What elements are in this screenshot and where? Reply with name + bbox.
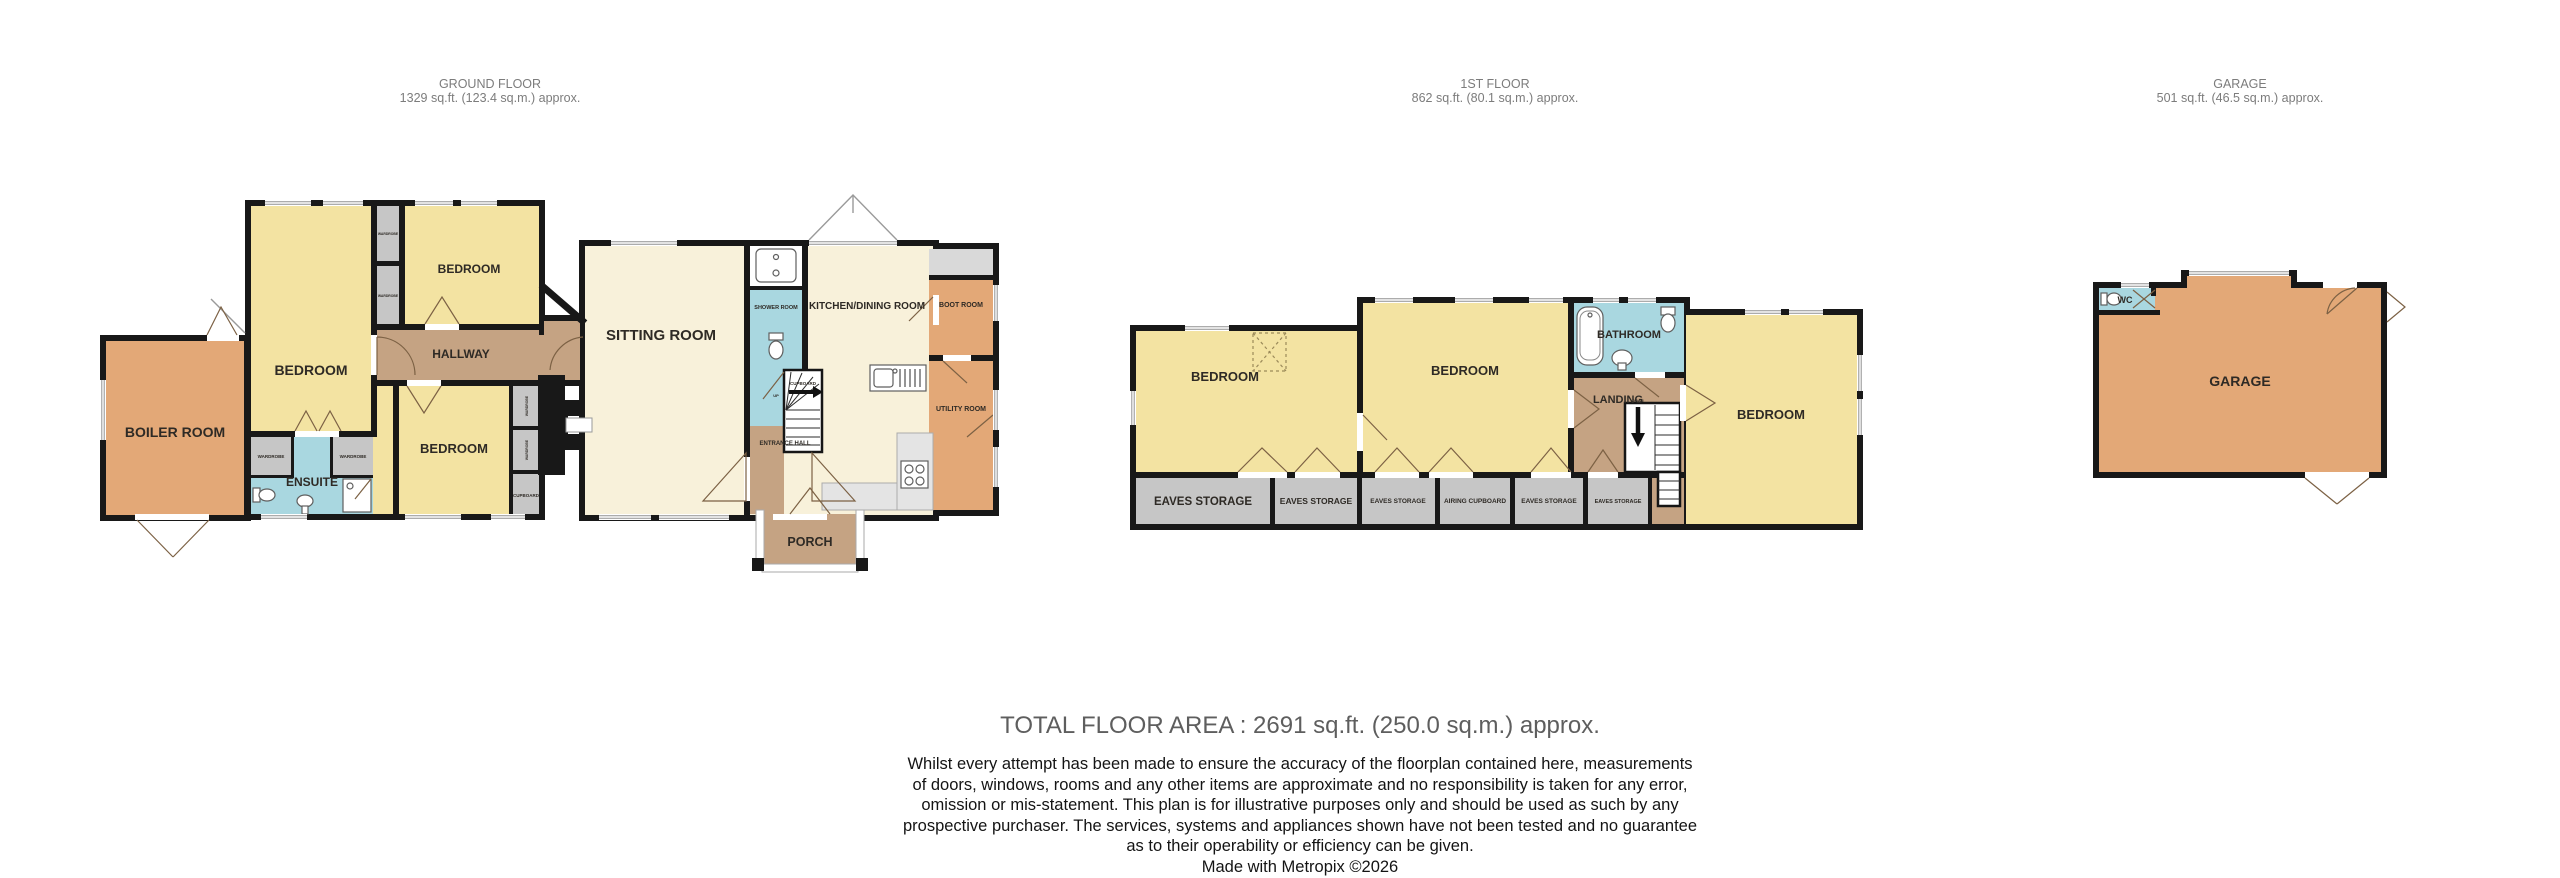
bedroom-1-label: BEDROOM xyxy=(274,362,347,378)
wardrobe-label-3: WARDROBE xyxy=(378,232,399,236)
garage-title: GARAGE xyxy=(2080,78,2400,92)
wardrobe-label-5: WARDROBE xyxy=(525,395,529,416)
garage-header: GARAGE 501 sq.ft. (46.5 sq.m.) approx. xyxy=(2080,78,2400,105)
ground-floor-area: 1329 sq.ft. (123.4 sq.m.) approx. xyxy=(330,92,650,106)
hallway-label: HALLWAY xyxy=(432,347,490,361)
kitchen-dining-label: KITCHEN/DINING ROOM xyxy=(809,301,925,312)
shower-room-toilet-icon xyxy=(769,333,783,359)
disclaimer-line-2: of doors, windows, rooms and any other i… xyxy=(820,775,1780,796)
boot-utility-area xyxy=(929,249,993,510)
eaves-4-label: EAVES STORAGE xyxy=(1521,498,1577,505)
hearth xyxy=(566,418,592,432)
link-corridor-area xyxy=(544,321,580,380)
ff-bedroom-3-label: BEDROOM xyxy=(1737,407,1805,422)
wardrobe-label-2: WARDROBE xyxy=(340,454,367,459)
wc-label: WC xyxy=(2118,295,2133,305)
metropix-credit: Made with Metropix ©2026 xyxy=(820,857,1780,878)
bedroom-3-label: BEDROOM xyxy=(420,441,488,456)
ground-floor-plan: BOILER ROOM BEDROOM BEDROOM HALLWAY BEDR… xyxy=(95,185,1015,585)
utility-room-label: UTILITY ROOM xyxy=(936,406,986,413)
garage-label: GARAGE xyxy=(2209,373,2270,389)
ground-floor-header: GROUND FLOOR 1329 sq.ft. (123.4 sq.m.) a… xyxy=(330,78,650,105)
bedroom-2-label: BEDROOM xyxy=(438,262,501,276)
garage-plan: GARAGE WC xyxy=(2085,262,2415,512)
ensuite-label: ENSUITE xyxy=(286,475,338,489)
entrance-hall-label: ENTRANCE HALL xyxy=(760,441,811,447)
left-bedroom-area xyxy=(1136,331,1357,472)
ground-floor-title: GROUND FLOOR xyxy=(330,78,650,92)
disclaimer-line-4: prospective purchaser. The services, sys… xyxy=(820,816,1780,837)
garage-area: 501 sq.ft. (46.5 sq.m.) approx. xyxy=(2080,92,2400,106)
eaves-5-label: EAVES STORAGE xyxy=(1595,499,1642,505)
total-floor-area: TOTAL FLOOR AREA : 2691 sq.ft. (250.0 sq… xyxy=(780,712,1820,740)
boot-room-label: BOOT ROOM xyxy=(939,302,983,309)
sitting-room-label: SITTING ROOM xyxy=(606,327,716,344)
cupboard-label-2: CUPBOARD xyxy=(790,381,817,386)
wardrobe-label-1: WARDROBE xyxy=(258,454,285,459)
disclaimer-line-5: as to their operability or efficiency ca… xyxy=(820,836,1780,857)
disclaimer-line-3: omission or mis-statement. This plan is … xyxy=(820,795,1780,816)
airing-cupboard-label: AIRING CUPBOARD xyxy=(1444,498,1506,505)
first-floor-area: 862 sq.ft. (80.1 sq.m.) approx. xyxy=(1335,92,1655,106)
bathroom-toilet-icon xyxy=(1661,307,1675,332)
ff-bedroom-1-label: BEDROOM xyxy=(1191,369,1259,384)
first-floor-title: 1ST FLOOR xyxy=(1335,78,1655,92)
up-label: UP xyxy=(773,393,779,398)
wardrobe-label-4: WARDROBE xyxy=(378,294,399,298)
shower-room-sink-icon xyxy=(756,249,796,282)
eaves-3-label: EAVES STORAGE xyxy=(1370,498,1426,505)
cupboard-label-1: CUPBOARD xyxy=(513,493,540,498)
first-floor-plan: BEDROOM BEDROOM BEDROOM BATHROOM LANDING… xyxy=(1125,295,1870,540)
bathroom-label: BATHROOM xyxy=(1597,329,1661,341)
middle-bedroom-area xyxy=(1363,303,1568,472)
first-floor-header: 1ST FLOOR 862 sq.ft. (80.1 sq.m.) approx… xyxy=(1335,78,1655,105)
ff-bedroom-2-label: BEDROOM xyxy=(1431,363,1499,378)
shower-room-label: SHOWER ROOM xyxy=(754,305,798,311)
eaves-1-label: EAVES STORAGE xyxy=(1154,496,1252,508)
porch-label: PORCH xyxy=(787,535,832,549)
hob-icon xyxy=(901,461,928,488)
boiler-room-label: BOILER ROOM xyxy=(125,424,225,440)
disclaimer: Whilst every attempt has been made to en… xyxy=(820,754,1780,878)
kitchen-sink-icon xyxy=(870,365,926,391)
disclaimer-line-1: Whilst every attempt has been made to en… xyxy=(820,754,1780,775)
down-label: DOWN xyxy=(1632,399,1644,403)
eaves-2-label: EAVES STORAGE xyxy=(1280,496,1353,506)
wardrobe-label-6: WARDROBE xyxy=(525,439,529,460)
